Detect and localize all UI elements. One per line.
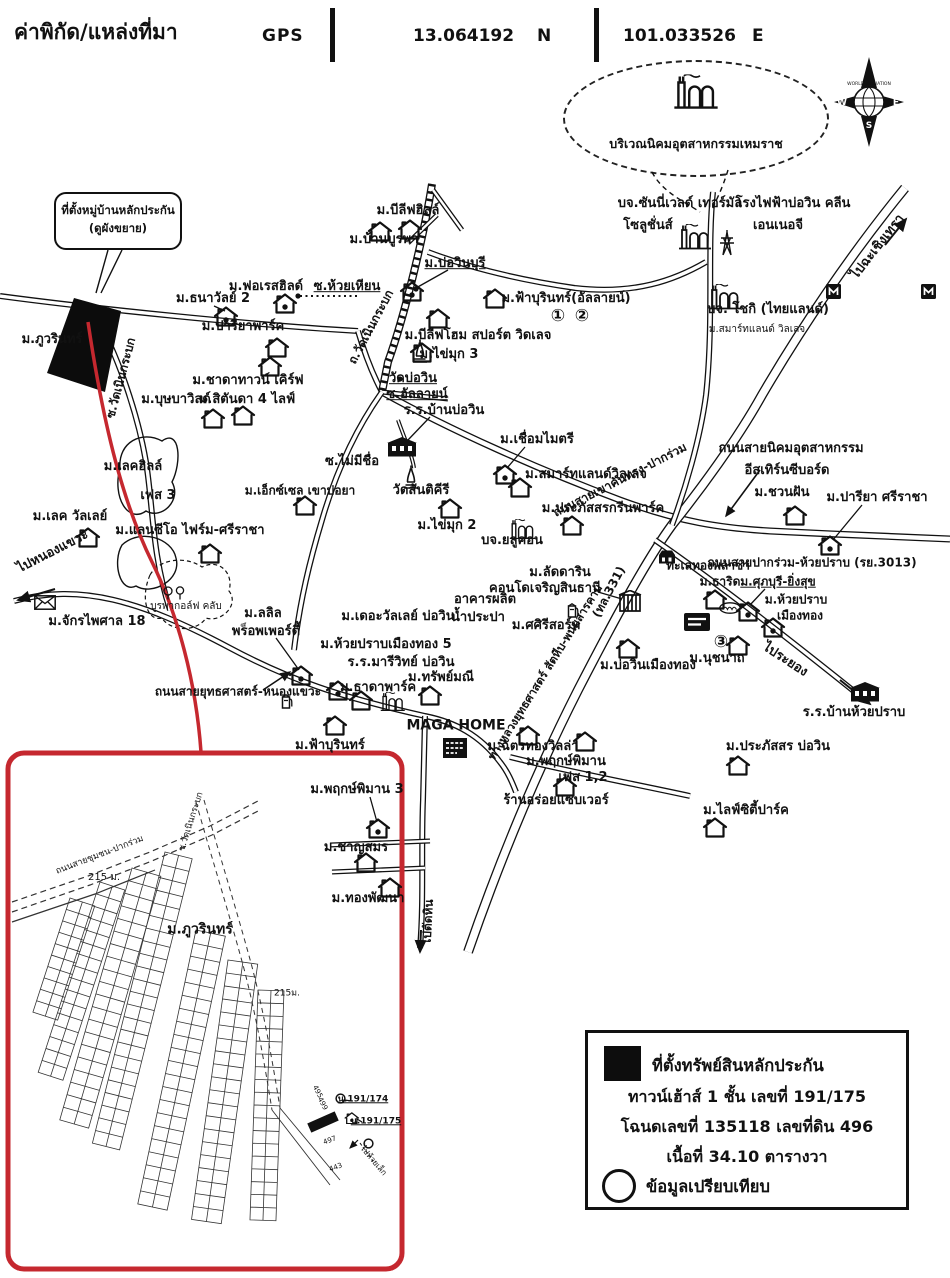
map-label: บจ.ยลูคอน [481, 534, 543, 548]
map-label: ม.แลนซีโอ ไฟร์ม-ศรีราชา [115, 524, 264, 538]
map-label: ม.เลค วัลเลย์ [33, 510, 107, 524]
map-label: ไปฉะเชิงเทรา [849, 212, 907, 282]
map-label: ถนนสายยุทธศาสตร์-หนองแขวะ [155, 686, 321, 699]
map-label: ไปหนองแขวะ [15, 528, 91, 576]
map-label: ม.ทรัพย์มณี [408, 671, 474, 685]
map-label: บูรพากอล์ฟ คลับ [150, 602, 222, 613]
legend-compare-label: ข้อมูลเปรียบเทียบ [646, 1174, 770, 1200]
map-label: ถ.วัดเนินกระบก [346, 288, 396, 366]
map-label: ร.ร.มารีวิทย์ บ่อวิน [348, 656, 455, 670]
map-label: 497 [322, 1135, 337, 1146]
map-label: ซ.อัลลายน์ [386, 388, 447, 402]
map-label: ม.ห้วยปราบ [765, 594, 828, 607]
map-label: ม.ธาดาพาร์ค [340, 681, 416, 695]
map-label: ม.ปารียา ศรีราชา [826, 491, 927, 505]
map-label: ม.ลัดดาริน [529, 566, 591, 580]
map-label: วัดบ่อวิน [389, 372, 437, 386]
map-label: โรงไฟฟ้าบ่อวิน คลีน [736, 197, 851, 211]
map-label: น.191/175 [351, 1117, 401, 1126]
map-label: ร้านอร่อยแซบเวอร์ [503, 794, 608, 808]
map-label: บจ. โชกิ (ไทยแลนด์) [707, 303, 829, 317]
map-label: ม.บีลีฟโฮม สปอร์ต วิดเลจ [405, 329, 552, 343]
map-label: ม.ทองพัฒนา [332, 892, 405, 906]
map-label: ถนนสายปากร่วม-ห้วยปราบ (รย.3013) [707, 557, 916, 570]
map-label: 499 [316, 1096, 329, 1111]
legend-line4: เนื้อที่ 34.10 ตารางวา [666, 1145, 827, 1170]
map-label: อาคารผลิต [454, 593, 516, 607]
map-label: ม.ไข่มุก 3 [420, 348, 479, 362]
legend-line2: ทาวน์เฮ้าส์ 1 ชั้น เลขที่ 191/175 [628, 1085, 866, 1110]
map-label: ม.ธาริด [700, 576, 741, 589]
map-label: ม.สมาร์ทแลนด์ วิลเลจ [709, 325, 805, 336]
map-label: ม.เชื่อมไมตรี [500, 433, 574, 447]
map-label: ม.พฤกษ์พิมาน 3 [310, 783, 403, 797]
map-label: ซ.วัดเนินกระบก [178, 791, 206, 852]
map-label: ม.ธนาวัลย์ 2 [176, 292, 250, 306]
map-label: ม.บ่อวินบุรี [425, 257, 486, 271]
map-label: ม.ภูวรินทร์ [22, 333, 83, 347]
map-label: พร็อพเพอร์ตี้ [232, 625, 300, 639]
map-label: 443 [328, 1162, 343, 1173]
map-label: ร.ร.บ้านห้วยปราบ [803, 706, 906, 720]
map-label: ม.บุษบาวิลด์ [141, 393, 211, 407]
map-label: ม.นุชนาถ [689, 652, 744, 666]
map-label: ม.ลลิล [244, 607, 281, 621]
map-label: ③ [714, 634, 728, 652]
map-label: ม.ฟ้าบุรินทร์ [295, 739, 365, 753]
map-label: น้ำประปา [451, 611, 505, 625]
map-label: 215 ม. [88, 873, 120, 884]
map-label: 215ม. [274, 989, 300, 998]
map-label: ม.สิตันดา 4 ไลฟ์ [199, 393, 295, 407]
map-label: ม.ไลฟ์ซิตี้ปาร์ค [703, 804, 789, 818]
map-label: เฟส 3 [140, 489, 175, 503]
map-label: ① [551, 308, 565, 326]
map-label: ม.ภูวรินทร์ [167, 923, 232, 938]
map-label: ไปห้วยเล็ก [358, 1144, 388, 1177]
map-label: ม.ชาญสมร [324, 841, 388, 855]
map-label: อีสเทิร์นซีบอร์ด [745, 464, 830, 478]
map-label: ม.ประภัสสร บ่อวิน [726, 740, 830, 754]
map-label: ม.บ่อวินเมืองทอง [600, 659, 696, 673]
legend-property-label: ที่ตั้งทรัพย์สินหลักประกัน [652, 1053, 824, 1079]
compare-marker-icon [602, 1169, 636, 1203]
map-label: ม.บ้านบูรพา [349, 233, 418, 247]
map-label: ม.ชาดาทาวน์ เคิร์ฟ [192, 374, 303, 388]
map-label: เอนเนอจี [753, 219, 803, 233]
map-label: ม.ไข่มุก 2 [418, 519, 477, 533]
map-label: ถนนสายนิคมอุตสาหกรรม [718, 442, 863, 456]
legend-line3: โฉนดเลขที่ 135118 เลขที่ดิน 496 [621, 1115, 874, 1140]
map-label: ไปตัดหิน [421, 899, 436, 945]
map-label: บจ.ซันนี่เวลด์ เทอร์มัล [618, 197, 742, 211]
map-label: ทางหลวงยุทธศาสตร์ สัตหีบ-พนมสารคาม [486, 582, 605, 762]
map-label: ร.ร.บ้านบ่อวิน [404, 404, 485, 418]
map-label: ม.ศุภบุรี-ยิ่งสุข [740, 576, 815, 589]
map-label: น.191/174 [338, 1095, 388, 1104]
map-label: ม.จักรไพศาล 18 [48, 615, 145, 629]
map-label: ซ.ห้วยเหียน [314, 280, 381, 294]
map-label: ม.ปารียาพาร์ค [202, 320, 285, 334]
map-label: ซ.ไม่มีชื่อ [325, 455, 379, 469]
map-label: ไประยอง [760, 641, 810, 680]
map-label: ม.ฟ้าบุรินทร์(อัลลายน์) [501, 292, 630, 306]
map-label: MAGA HOME [406, 719, 505, 734]
map-label: ม.ฉัตรทองวิลล่า [487, 740, 578, 754]
map-label: เฟส 1,2 [558, 771, 607, 785]
map-label: ม.บีลีฟฮิลล์ [377, 204, 440, 218]
property-marker-swatch [604, 1046, 641, 1081]
map-label: ② [575, 308, 589, 326]
map-label: ม.ชวนฝัน [754, 486, 809, 500]
legend-box: ที่ตั้งทรัพย์สินหลักประกัน ทาวน์เฮ้าส์ 1… [585, 1030, 909, 1210]
map-label: ม.ฟอเรสฮิลด์ [229, 280, 303, 294]
map-label: เมืองทอง [777, 610, 823, 623]
map-label: ซ.วัดเนินกระบก [104, 336, 138, 419]
map-label: ม.เอ็กซ์เซล เขาบ่อยา [245, 485, 356, 498]
map-label: โซลูชั่นส์ [623, 219, 672, 233]
map-label: ม.พฤกษ์พิมาน [526, 755, 606, 769]
map-label: ม.ห้วยปราบเมืองทอง 5 [320, 638, 451, 652]
map-label: วัดสันติคีรี [393, 484, 450, 498]
map-label: ม.เลคฮิลล์ [104, 460, 162, 474]
map-label: ม.เดอะวัลเลย์ บ่อวิน [341, 610, 454, 624]
map-document-page: ค่าพิกัด/แหล่งที่มา GPS 13.064192 N 101.… [0, 0, 950, 1278]
